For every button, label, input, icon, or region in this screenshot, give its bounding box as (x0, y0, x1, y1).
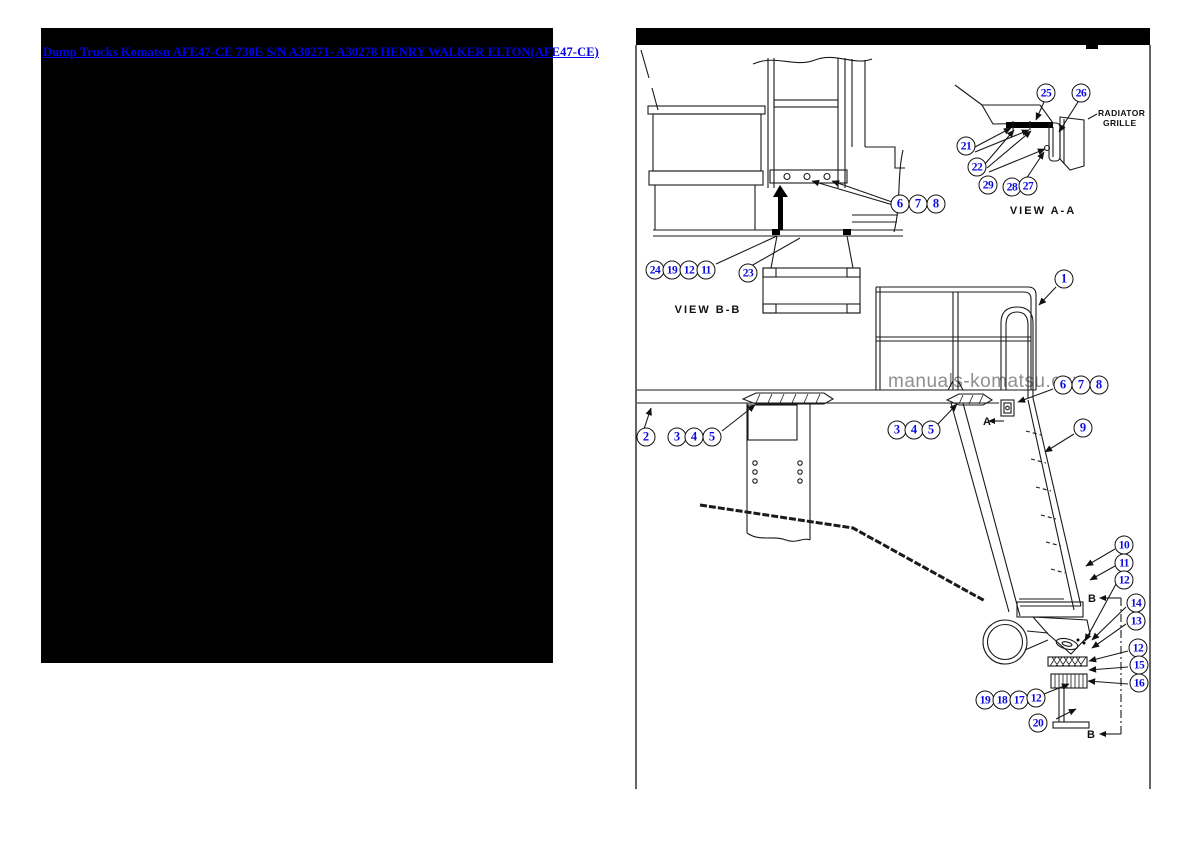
callout-25[interactable]: 25 (1037, 84, 1056, 103)
callout-23[interactable]: 23 (739, 264, 758, 283)
callout-8[interactable]: 8 (927, 195, 946, 214)
callout-11[interactable]: 11 (697, 261, 716, 280)
callout-20[interactable]: 20 (1029, 714, 1048, 733)
callout-21[interactable]: 21 (957, 137, 976, 156)
callout-9[interactable]: 9 (1074, 419, 1093, 438)
callout-1[interactable]: 1 (1055, 270, 1074, 289)
callout-12[interactable]: 12 (1115, 571, 1134, 590)
callout-22[interactable]: 22 (968, 158, 987, 177)
callout-10[interactable]: 10 (1115, 536, 1134, 555)
callout-26[interactable]: 26 (1072, 84, 1091, 103)
callout-7[interactable]: 7 (909, 195, 928, 214)
callout-4[interactable]: 4 (685, 428, 704, 447)
callout-15[interactable]: 15 (1130, 656, 1149, 675)
callout-8[interactable]: 8 (1090, 376, 1109, 395)
callout-14[interactable]: 14 (1127, 594, 1146, 613)
callout-2[interactable]: 2 (637, 428, 656, 447)
callout-5[interactable]: 5 (703, 428, 722, 447)
callout-12[interactable]: 12 (1027, 689, 1046, 708)
callout-29[interactable]: 29 (979, 176, 998, 195)
callout-27[interactable]: 27 (1019, 177, 1038, 196)
page: Dump Trucks Komatsu AFE47-CE 730E S/N A3… (0, 0, 1190, 842)
callout-6[interactable]: 6 (891, 195, 910, 214)
callout-16[interactable]: 16 (1130, 674, 1149, 693)
callout-5[interactable]: 5 (922, 421, 941, 440)
callout-layer: 6782419121123212229282725261678923453451… (0, 0, 1190, 842)
callout-7[interactable]: 7 (1072, 376, 1091, 395)
callout-6[interactable]: 6 (1054, 376, 1073, 395)
callout-13[interactable]: 13 (1127, 612, 1146, 631)
callout-17[interactable]: 17 (1010, 691, 1029, 710)
parts-diagram-panel: manuals-komatsu.com (0, 0, 1190, 842)
